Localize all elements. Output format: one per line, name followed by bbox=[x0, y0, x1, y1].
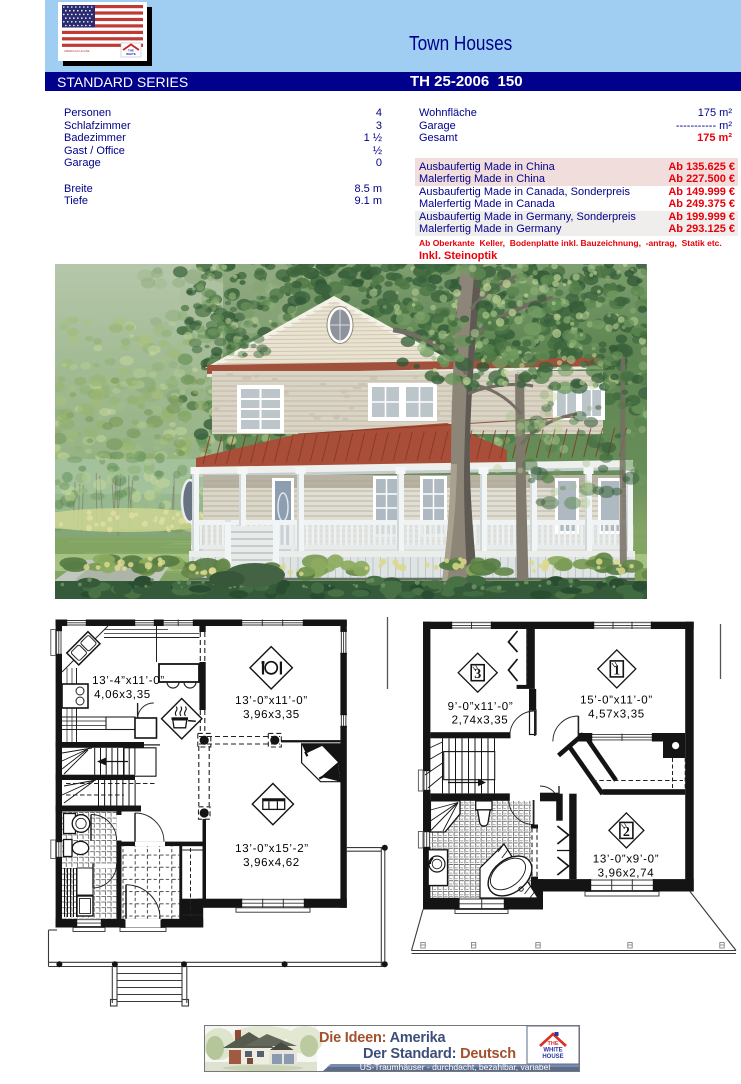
svg-text:Die Ideen: Amerika: Die Ideen: Amerika bbox=[319, 1030, 447, 1046]
svg-text:Der Standard: Deutsch: Der Standard: Deutsch bbox=[363, 1046, 516, 1062]
svg-text:2: 2 bbox=[623, 825, 630, 840]
svg-text:9’-0”x11’-0”: 9’-0”x11’-0” bbox=[448, 701, 514, 713]
svg-text:4,57x3,35: 4,57x3,35 bbox=[588, 709, 645, 721]
svg-text:4,06x3,35: 4,06x3,35 bbox=[94, 689, 151, 701]
svg-text:WHITE: WHITE bbox=[543, 1048, 562, 1054]
svg-text:3,96x3,35: 3,96x3,35 bbox=[243, 709, 300, 721]
svg-text:13’-0”x9’-0”: 13’-0”x9’-0” bbox=[593, 854, 660, 866]
svg-text:3,96x2,74: 3,96x2,74 bbox=[598, 868, 655, 880]
svg-text:3: 3 bbox=[474, 667, 481, 682]
svg-text:13’-0”x11’-0”: 13’-0”x11’-0” bbox=[235, 695, 308, 707]
svg-text:WHITE: WHITE bbox=[126, 52, 136, 56]
svg-text:15’-0”x11’-0”: 15’-0”x11’-0” bbox=[580, 695, 653, 707]
svg-text:3,96x4,62: 3,96x4,62 bbox=[243, 857, 300, 869]
svg-text:THE: THE bbox=[548, 1041, 559, 1047]
svg-text:1: 1 bbox=[613, 663, 620, 678]
svg-text:AMERICAN HOUSE: AMERICAN HOUSE bbox=[64, 49, 90, 53]
svg-text:US-Traumhäuser - durchdacht, b: US-Traumhäuser - durchdacht, bezahlbar, … bbox=[360, 1062, 551, 1071]
svg-text:HOUSE: HOUSE bbox=[542, 1054, 563, 1060]
svg-text:13’-0”x15’-2”: 13’-0”x15’-2” bbox=[235, 843, 309, 855]
svg-text:2,74x3,35: 2,74x3,35 bbox=[452, 715, 509, 727]
svg-text:13’-4”x11’-0”: 13’-4”x11’-0” bbox=[92, 675, 165, 687]
